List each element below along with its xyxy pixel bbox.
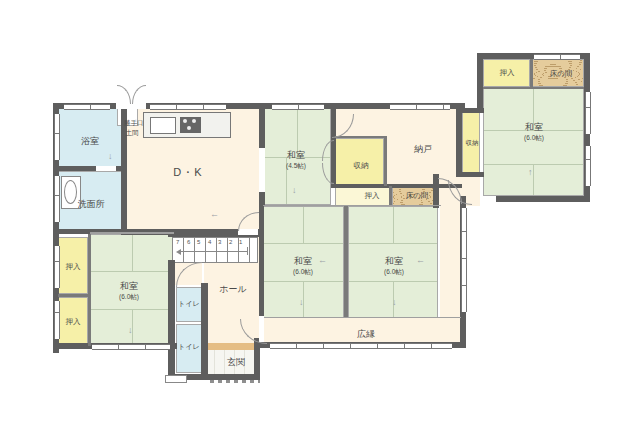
window <box>390 104 450 110</box>
label-bath: 浴室 <box>81 137 99 146</box>
label-closet-right: 収納 <box>466 140 479 147</box>
tatami-line <box>264 243 343 244</box>
arrow-icon: ↓ <box>128 326 133 335</box>
window <box>585 146 591 186</box>
label-center-right-size: (6.0帖) <box>384 269 404 276</box>
tatami-line <box>533 164 534 195</box>
wall <box>496 196 590 202</box>
label-genkan: 玄関 <box>227 358 245 367</box>
window <box>92 344 170 350</box>
arrow-icon: ↑ <box>528 168 533 177</box>
label-toilet-lower: トイレ <box>178 343 200 350</box>
porch-hatch <box>210 380 260 383</box>
label-bl-oshiire-upper: 押入 <box>66 263 81 271</box>
door-opening <box>96 166 116 171</box>
window <box>270 343 452 349</box>
window <box>54 114 60 160</box>
label-washitsu45: 和室 <box>287 151 305 160</box>
wall <box>477 53 483 113</box>
tatami-line <box>91 271 173 272</box>
partition <box>58 294 88 297</box>
label-washroom: 洗面所 <box>78 200 105 209</box>
label-tr-tokonoma: 床の間 <box>550 70 573 78</box>
label-center-left: 和室 <box>294 257 312 266</box>
window <box>54 301 60 339</box>
floor-plan: 7 6 5 4 3 2 1 <box>0 0 640 436</box>
partition <box>335 136 385 138</box>
label-washitsu45-size: (4.5帖) <box>286 163 306 170</box>
partition <box>483 87 584 89</box>
stair-number: 5 <box>197 239 200 245</box>
partition <box>344 206 348 318</box>
burner <box>192 119 196 123</box>
label-tokonoma-mid: 床の間 <box>406 192 429 200</box>
stair-number: 6 <box>187 239 190 245</box>
door-opening <box>259 148 265 192</box>
tatami-line <box>393 207 394 243</box>
label-tr-oshiire: 押入 <box>500 69 515 77</box>
window <box>534 54 580 60</box>
staircase <box>172 237 258 263</box>
outside-step <box>165 375 187 383</box>
burner <box>183 119 187 123</box>
label-hall: ホール <box>219 285 246 294</box>
door-arc-kitchen-left <box>117 85 131 104</box>
arrow-icon: ↓ <box>299 298 304 307</box>
label-kitchen-door-1: 勝手口 <box>124 120 144 127</box>
label-toilet-upper: トイレ <box>178 300 200 307</box>
sliding-door-line <box>263 317 461 318</box>
sliding-door-line <box>263 205 441 206</box>
tatami-line <box>132 235 133 271</box>
label-closet-mid: 収納 <box>354 162 369 170</box>
stair-direction-arrow <box>176 249 181 255</box>
arrow-icon: ← <box>318 256 327 265</box>
label-bl-washitsu-size: (6.0帖) <box>119 294 139 301</box>
partition <box>530 59 533 87</box>
hiroen-vertical <box>440 206 462 318</box>
label-hiroen: 広縁 <box>357 330 375 339</box>
window <box>54 176 60 222</box>
stair-direction-tick <box>247 247 248 255</box>
burner <box>187 126 191 130</box>
arrow-icon: ↓ <box>108 152 113 161</box>
arrow-icon: ← <box>210 210 219 219</box>
stair-number: 4 <box>208 239 211 245</box>
label-oshiire-mid: 押入 <box>365 192 380 200</box>
label-bl-oshiire-lower: 押入 <box>66 318 81 326</box>
label-center-left-size: (6.0帖) <box>293 269 313 276</box>
wall <box>456 172 484 177</box>
arrow-icon: ↓ <box>392 298 397 307</box>
kitchen-sink <box>150 117 176 134</box>
stair-direction-line <box>181 251 247 252</box>
label-tr-washitsu-size: (6.0帖) <box>524 135 544 142</box>
tatami-line <box>303 207 304 243</box>
label-dk: D・K <box>173 167 202 178</box>
genkan-step <box>204 343 256 350</box>
window <box>585 92 591 134</box>
wall <box>201 283 208 380</box>
door-arc-kitchen-right <box>132 85 146 104</box>
partition <box>88 234 91 346</box>
label-center-right: 和室 <box>385 257 403 266</box>
stair-number: 7 <box>176 239 179 245</box>
window <box>54 246 60 288</box>
stair-number: 2 <box>229 239 232 245</box>
wall <box>456 103 462 177</box>
wall <box>168 260 175 380</box>
window <box>64 104 110 110</box>
stove-icon <box>180 117 201 133</box>
label-tr-washitsu: 和室 <box>525 123 543 132</box>
arrow-icon: ← <box>416 256 425 265</box>
label-kitchen-door-2: 土間 <box>126 130 139 137</box>
window <box>272 104 324 110</box>
partition <box>384 136 387 186</box>
window <box>461 208 467 312</box>
tatami-line <box>349 243 437 244</box>
sliding-door-line <box>90 232 174 234</box>
oshiire-mid <box>335 186 390 206</box>
window <box>150 104 226 110</box>
stair-number: 3 <box>218 239 221 245</box>
label-bl-washitsu: 和室 <box>120 282 138 291</box>
washbasin-bowl <box>64 180 77 204</box>
arrow-icon: ↓ <box>292 186 297 195</box>
label-nando: 納戸 <box>414 145 432 154</box>
stair-number: 1 <box>239 239 242 245</box>
partition <box>389 186 392 206</box>
